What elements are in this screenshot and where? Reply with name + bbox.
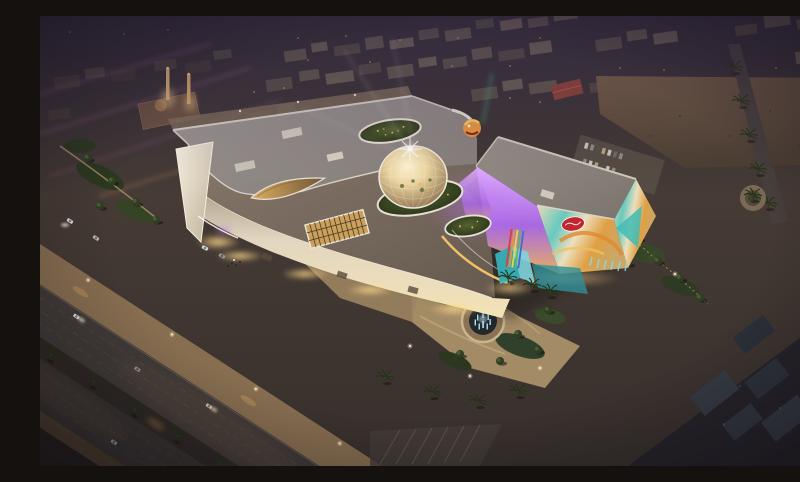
rendering-canvas (40, 16, 800, 466)
vignette (40, 16, 800, 466)
aerial-mall-rendering: Aerial dusk rendering of a large shoppin… (40, 16, 800, 466)
